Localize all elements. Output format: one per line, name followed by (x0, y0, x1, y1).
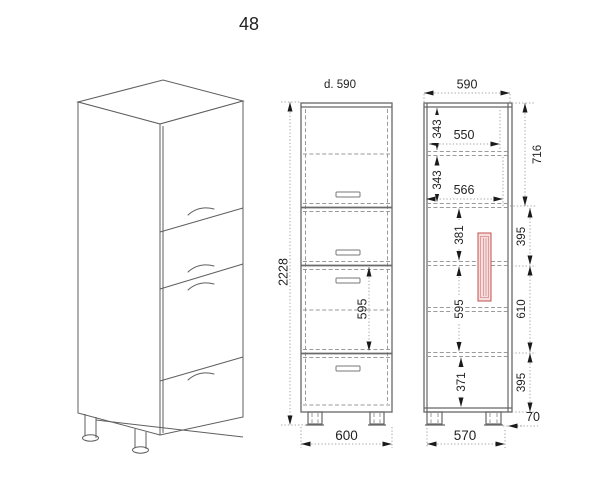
drawing-canvas: 48 (0, 0, 600, 480)
side-dim-top-width: 590 (424, 78, 510, 103)
front-view: d. 590 2228 595 600 (277, 79, 393, 448)
side-view: 590 550 566 343 343 381 595 (424, 78, 544, 449)
side-dim-top-width-text: 590 (457, 78, 478, 92)
side-dim-drawer2-front-text: 610 (516, 299, 528, 318)
front-feet (306, 412, 386, 425)
front-depth-label: d. 590 (324, 79, 356, 91)
cabinet-side-face (78, 102, 160, 435)
side-dim-bottom-width: 570 (427, 428, 505, 448)
side-dim-lower-depth-text: 566 (454, 183, 475, 197)
front-dim-total-height-text: 2228 (277, 258, 291, 286)
drawing-title: 48 (239, 14, 259, 34)
cabinet-technical-drawing: 48 (0, 0, 600, 480)
front-dim-width: 600 (301, 427, 392, 448)
side-dim-drawer3-front-text: 395 (516, 373, 528, 392)
side-dim-upper-depth-text: 550 (454, 128, 475, 142)
front-dim-middle-drawer-text: 595 (356, 299, 370, 320)
perspective-view (78, 80, 243, 453)
side-dim-drawer1-front-text: 395 (516, 227, 528, 246)
side-feet (425, 412, 503, 425)
side-dim-drawer3-inner-text: 371 (456, 372, 468, 391)
front-dim-width-text: 600 (335, 428, 358, 443)
side-dim-drawer2-inner-text: 595 (454, 299, 466, 318)
side-dim-lower-shelf-text: 343 (432, 170, 444, 189)
red-section-part (478, 233, 491, 301)
side-dim-upper-shelf-text: 343 (432, 119, 444, 138)
side-dim-drawer1-inner-text: 381 (454, 225, 466, 244)
side-dim-bottom-width-text: 570 (454, 428, 477, 443)
side-dim-feet-text: 70 (526, 410, 540, 424)
side-dim-door-front-text: 716 (532, 145, 544, 164)
